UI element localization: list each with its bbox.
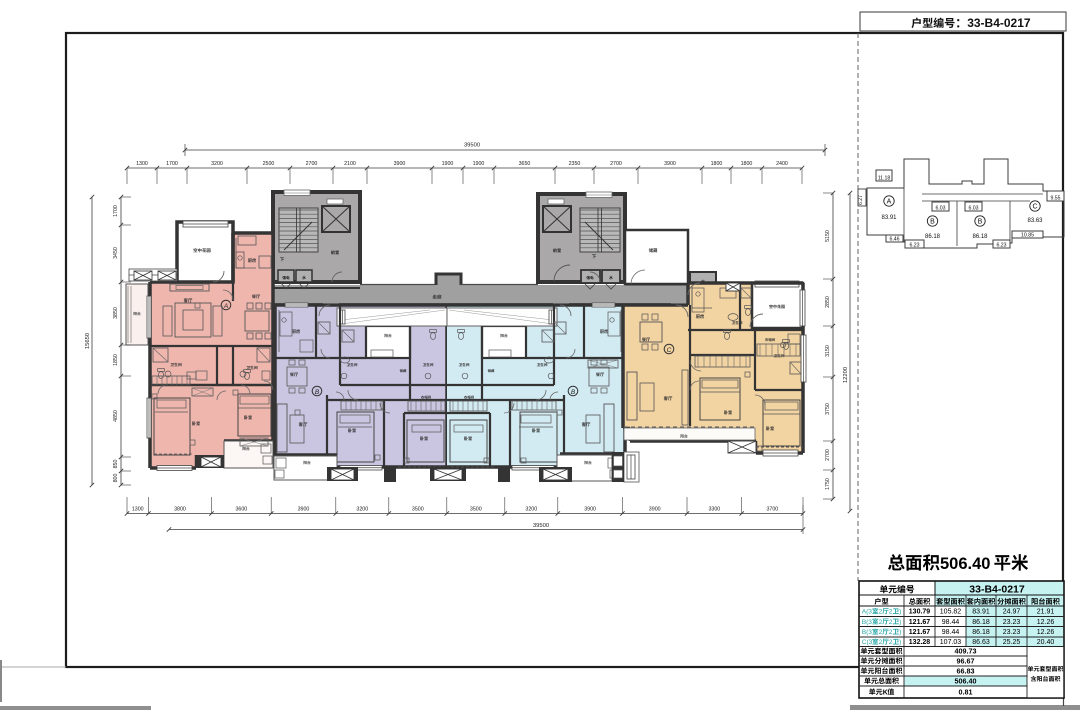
svg-text:2: 2	[889, 629, 893, 636]
svg-text:20.40: 20.40	[1037, 639, 1055, 646]
svg-text:39500: 39500	[464, 143, 480, 149]
svg-text:B: B	[315, 389, 320, 396]
svg-text:2100: 2100	[344, 161, 356, 167]
svg-text:121.67: 121.67	[909, 619, 931, 626]
svg-text:): )	[899, 639, 901, 646]
svg-text:2: 2	[879, 619, 883, 626]
svg-text:3900: 3900	[298, 507, 310, 513]
svg-text:39500: 39500	[533, 523, 549, 529]
svg-text:2700: 2700	[825, 449, 831, 461]
svg-text:24.97: 24.97	[1003, 609, 1021, 616]
svg-text:1800: 1800	[711, 161, 723, 167]
svg-text:11.18: 11.18	[878, 176, 891, 182]
svg-text:1300: 1300	[132, 507, 144, 513]
svg-text:4850: 4850	[113, 410, 119, 422]
svg-text:：33-B4-0217: ：33-B4-0217	[955, 16, 1031, 30]
svg-text:C: C	[667, 347, 672, 354]
svg-text:12200: 12200	[843, 367, 849, 383]
svg-text:10.85: 10.85	[1021, 233, 1034, 239]
svg-text:23.23: 23.23	[1003, 619, 1021, 626]
svg-text:409.73: 409.73	[955, 647, 977, 656]
svg-text:9.55: 9.55	[1050, 196, 1060, 202]
svg-text:12.26: 12.26	[1037, 619, 1055, 626]
svg-text:A(3: A(3	[862, 609, 873, 616]
svg-text:25.25: 25.25	[1003, 639, 1021, 646]
svg-text:C: C	[1032, 204, 1037, 211]
svg-text:3700: 3700	[766, 507, 778, 513]
svg-text:86.63: 86.63	[972, 639, 990, 646]
svg-text:B: B	[571, 389, 576, 396]
svg-text:132.28: 132.28	[909, 639, 931, 646]
svg-text:83.63: 83.63	[1027, 218, 1043, 224]
svg-text:86.18: 86.18	[972, 619, 990, 626]
svg-text:3800: 3800	[174, 507, 186, 513]
svg-text:B: B	[978, 219, 983, 226]
svg-text:3300: 3300	[708, 507, 720, 513]
svg-text:105.82: 105.82	[940, 609, 962, 616]
svg-text:1300: 1300	[136, 161, 148, 167]
svg-text:1900: 1900	[442, 161, 454, 167]
svg-text:2700: 2700	[306, 161, 318, 167]
svg-text:3900: 3900	[649, 507, 661, 513]
svg-text:6.46: 6.46	[889, 237, 899, 243]
svg-text:96.67: 96.67	[957, 656, 975, 665]
svg-text:33-B4-0217: 33-B4-0217	[969, 584, 1025, 596]
svg-text:1850: 1850	[113, 354, 119, 366]
svg-text:86.18: 86.18	[972, 629, 990, 636]
svg-text:3900: 3900	[584, 507, 596, 513]
svg-text:): )	[899, 629, 901, 636]
svg-text:506.40: 506.40	[940, 555, 990, 573]
svg-text:15650: 15650	[85, 333, 91, 349]
svg-text:3150: 3150	[825, 345, 831, 357]
svg-text:3200: 3200	[356, 507, 368, 513]
svg-text:23.23: 23.23	[1003, 629, 1021, 636]
svg-text:A: A	[887, 199, 892, 206]
svg-text:0.81: 0.81	[959, 687, 973, 696]
svg-text:3200: 3200	[211, 161, 223, 167]
svg-text:): )	[899, 609, 901, 616]
svg-text:2400: 2400	[776, 161, 788, 167]
svg-text:98.44: 98.44	[942, 619, 960, 626]
svg-text:2700: 2700	[610, 161, 622, 167]
svg-text:107.03: 107.03	[940, 639, 962, 646]
svg-text:): )	[899, 619, 901, 626]
svg-text:86.18: 86.18	[925, 234, 941, 240]
svg-text:5150: 5150	[825, 230, 831, 242]
svg-text:2: 2	[889, 619, 893, 626]
svg-text:2350: 2350	[569, 161, 581, 167]
svg-text:86.18: 86.18	[972, 234, 988, 240]
svg-text:1700: 1700	[166, 161, 178, 167]
svg-text:12.26: 12.26	[1037, 629, 1055, 636]
svg-text:3850: 3850	[113, 307, 119, 319]
svg-text:3750: 3750	[825, 403, 831, 415]
svg-text:3200: 3200	[525, 507, 537, 513]
svg-text:K: K	[883, 689, 888, 696]
svg-text:850: 850	[113, 460, 119, 469]
svg-text:2: 2	[879, 639, 883, 646]
svg-text:1750: 1750	[825, 478, 831, 490]
svg-text:3450: 3450	[113, 247, 119, 259]
svg-text:98.44: 98.44	[942, 629, 960, 636]
svg-text:1900: 1900	[473, 161, 485, 167]
svg-text:1700: 1700	[113, 205, 119, 217]
svg-text:3900: 3900	[394, 161, 406, 167]
svg-text:A: A	[223, 303, 228, 310]
svg-text:21.91: 21.91	[1037, 609, 1055, 616]
svg-text:1800: 1800	[741, 161, 753, 167]
svg-text:B(3: B(3	[862, 629, 873, 636]
svg-text:2: 2	[889, 639, 893, 646]
svg-text:C(3: C(3	[862, 639, 873, 646]
svg-text:6.03: 6.03	[968, 206, 978, 212]
svg-text:121.67: 121.67	[909, 629, 931, 636]
svg-text:3900: 3900	[664, 161, 676, 167]
svg-text:83.91: 83.91	[972, 609, 990, 616]
svg-text:506.40: 506.40	[955, 676, 977, 685]
svg-text:2500: 2500	[263, 161, 275, 167]
svg-text:2: 2	[879, 629, 883, 636]
svg-text:66.83: 66.83	[957, 666, 975, 675]
svg-text:B: B	[930, 219, 935, 226]
svg-text:6.23: 6.23	[909, 243, 919, 249]
svg-text:3500: 3500	[412, 507, 424, 513]
svg-text:B(3: B(3	[862, 619, 873, 626]
svg-text:6.03: 6.03	[935, 206, 945, 212]
svg-text:2: 2	[879, 609, 883, 616]
svg-text:6.23: 6.23	[996, 243, 1006, 249]
svg-text:130.79: 130.79	[909, 609, 931, 616]
svg-text:3500: 3500	[470, 507, 482, 513]
svg-text:6.27: 6.27	[858, 195, 864, 205]
svg-text:3600: 3600	[235, 507, 247, 513]
svg-text:83.91: 83.91	[881, 215, 897, 221]
svg-text:2850: 2850	[825, 296, 831, 308]
svg-text:800: 800	[113, 474, 119, 483]
svg-text:3650: 3650	[519, 161, 531, 167]
svg-text:2: 2	[889, 609, 893, 616]
